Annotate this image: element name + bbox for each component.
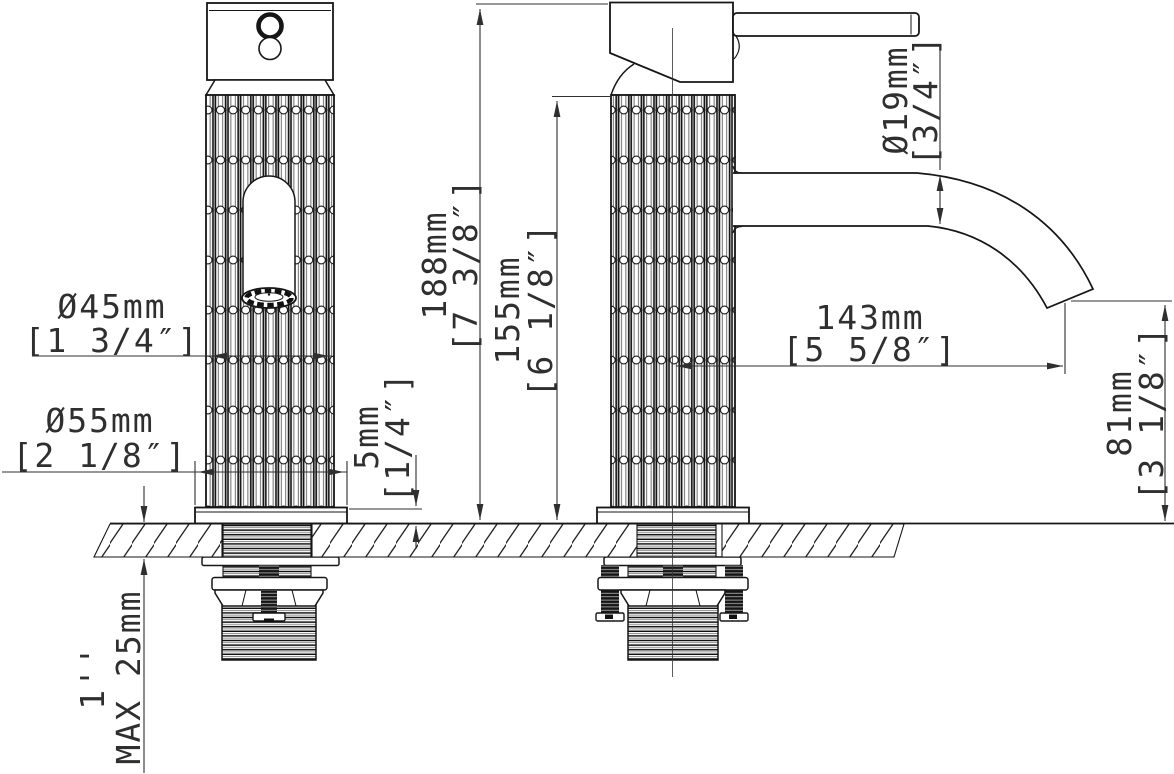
dim-body-height (552, 97, 610, 521)
label-base-diameter-mm: Ø55mm (45, 401, 154, 440)
label-overall-height-inch: [7 3/8″] (446, 178, 485, 353)
handle-head (610, 3, 733, 83)
neck-fillet (611, 64, 634, 95)
curved-spout (733, 173, 1093, 308)
base-flange (597, 508, 749, 524)
label-max-deck-thickness-inch: 1'' (73, 644, 112, 710)
counter-hatch-middle (312, 524, 637, 557)
label-max-deck-thickness-mm: MAX 25mm (109, 590, 148, 765)
handle-joint (734, 36, 739, 59)
label-spout-tube-diameter-inch: [3/4″] (906, 34, 945, 165)
fixing-bolt (663, 565, 683, 578)
dimension-labels: Ø45mm [1 3/4″] Ø55mm [2 1/8″] 5mm [1/4″]… (13, 34, 1171, 764)
neck (206, 80, 334, 95)
aerator (242, 288, 296, 308)
handle-knob (259, 38, 281, 60)
mounting-nut (621, 590, 725, 606)
mounting-plate (598, 578, 748, 591)
lever-handle (733, 13, 919, 36)
threaded-shank (628, 524, 716, 558)
label-body-height-inch: [6 1/8″] (521, 223, 560, 398)
label-body-diameter-inch: [1 3/4″] (25, 321, 200, 360)
drawing-svg: Ø45mm [1 3/4″] Ø55mm [2 1/8″] 5mm [1/4″]… (0, 0, 1174, 774)
fixing-screw (261, 590, 277, 615)
counter-hatch-left (94, 524, 222, 557)
threaded-shank (223, 524, 311, 558)
fixing-bolt (259, 565, 279, 578)
label-spout-outlet-height-inch: [3 1/8″] (1132, 326, 1171, 501)
mounting-plate (212, 578, 327, 591)
faucet-technical-drawing: Ø45mm [1 3/4″] Ø55mm [2 1/8″] 5mm [1/4″]… (0, 0, 1174, 774)
washer (202, 557, 339, 566)
front-view-faucet (195, 3, 347, 660)
base-flange (195, 508, 347, 524)
spout-window (243, 176, 295, 300)
label-base-diameter-inch: [2 1/8″] (13, 436, 188, 475)
counter-hatch-right (722, 524, 904, 557)
label-base-plate-height-inch: [1/4″] (378, 371, 417, 502)
knurled-body (611, 95, 735, 507)
label-spout-reach-inch: [5 5/8″] (783, 330, 958, 369)
handle-ring (259, 15, 282, 38)
dimension-lines (2, 4, 1172, 773)
